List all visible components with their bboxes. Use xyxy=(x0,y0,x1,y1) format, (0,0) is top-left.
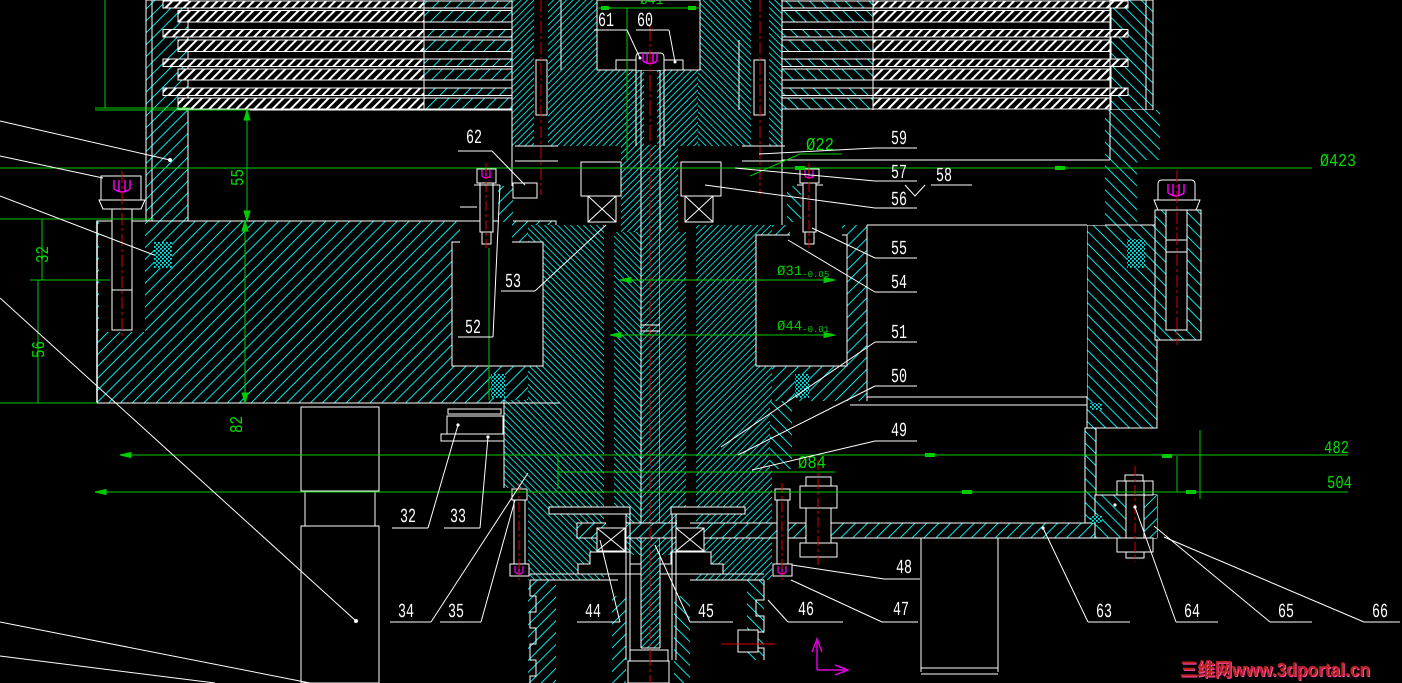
svg-text:482: 482 xyxy=(1324,439,1349,459)
svg-text:49: 49 xyxy=(891,420,907,443)
svg-text:64: 64 xyxy=(1184,601,1200,624)
svg-text:35: 35 xyxy=(448,601,464,624)
svg-text:45: 45 xyxy=(698,601,714,624)
svg-text:66: 66 xyxy=(1372,601,1388,624)
svg-text:三维网www.3dportal.cn: 三维网www.3dportal.cn xyxy=(1180,659,1370,681)
svg-text:82: 82 xyxy=(228,416,248,433)
svg-text:48: 48 xyxy=(896,557,912,580)
svg-text:56: 56 xyxy=(30,341,50,358)
svg-text:63: 63 xyxy=(1096,601,1112,624)
svg-text:32: 32 xyxy=(400,506,416,529)
svg-text:65: 65 xyxy=(1278,601,1294,624)
svg-text:Ø423: Ø423 xyxy=(1320,152,1356,172)
svg-text:34: 34 xyxy=(398,601,414,624)
svg-text:46: 46 xyxy=(798,599,814,622)
svg-text:57: 57 xyxy=(891,162,907,185)
svg-text:47: 47 xyxy=(893,599,909,622)
svg-text:55: 55 xyxy=(229,169,249,186)
svg-text:56: 56 xyxy=(891,189,907,212)
svg-text:Ø84: Ø84 xyxy=(798,454,826,474)
svg-text:33: 33 xyxy=(450,506,466,529)
svg-text:504: 504 xyxy=(1327,474,1352,494)
svg-text:Ø22: Ø22 xyxy=(806,136,834,156)
svg-text:44: 44 xyxy=(585,601,601,624)
svg-text:32: 32 xyxy=(34,246,54,263)
svg-text:Ø41: Ø41 xyxy=(640,0,664,8)
svg-text:62: 62 xyxy=(466,127,482,150)
